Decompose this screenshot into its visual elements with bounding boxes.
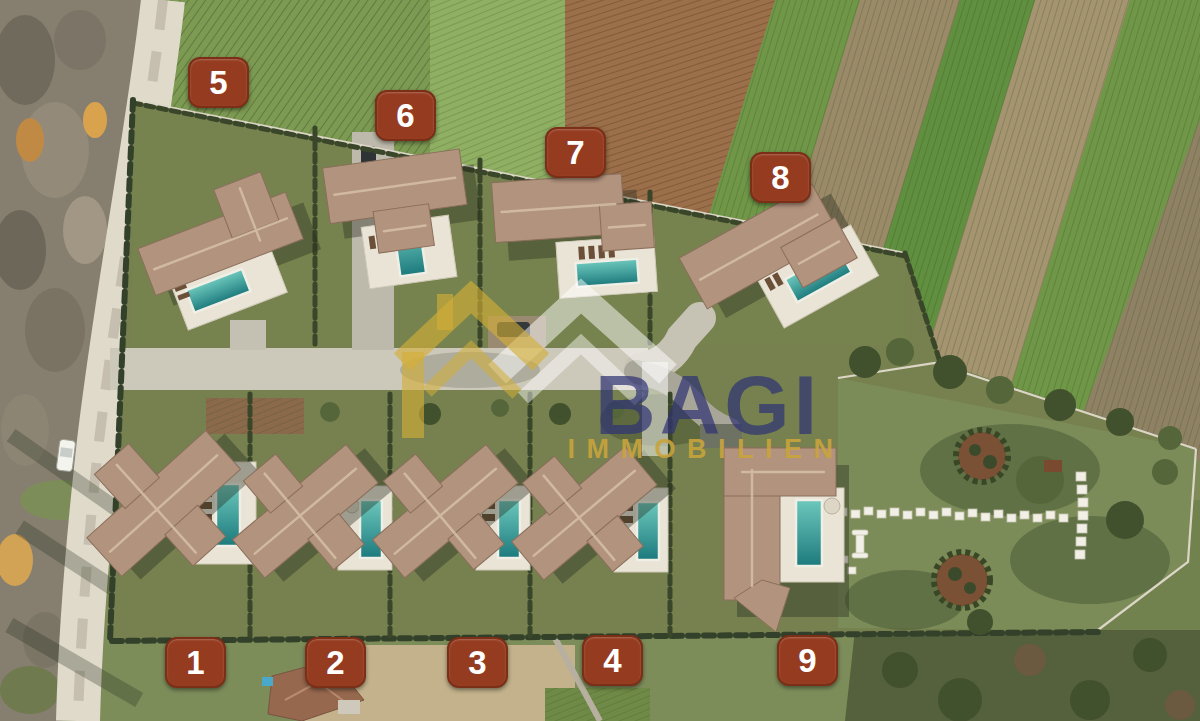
aerial-site-plan: BAGI IMMOBILIEN 5 6 7 8 1 2 3 4 9 [0,0,1200,721]
picnic-table [1044,460,1062,472]
flowerbed-circle [934,552,990,608]
plot-badge-3[interactable]: 3 [447,637,508,688]
house-9 [724,448,849,632]
plot-badge-1[interactable]: 1 [165,637,226,688]
plot-badge-8[interactable]: 8 [750,152,811,203]
plot-badge-4[interactable]: 4 [582,635,643,686]
plot-badge-2[interactable]: 2 [305,637,366,688]
plot-badge-6[interactable]: 6 [375,90,436,141]
plot-badge-9[interactable]: 9 [777,635,838,686]
watermark-tagline-text: IMMOBILIEN [568,434,845,464]
plot-badge-5[interactable]: 5 [188,57,249,108]
plot-badge-7[interactable]: 7 [545,127,606,178]
site-plan-image: BAGI IMMOBILIEN [0,0,1200,721]
parked-car-white [56,439,76,472]
